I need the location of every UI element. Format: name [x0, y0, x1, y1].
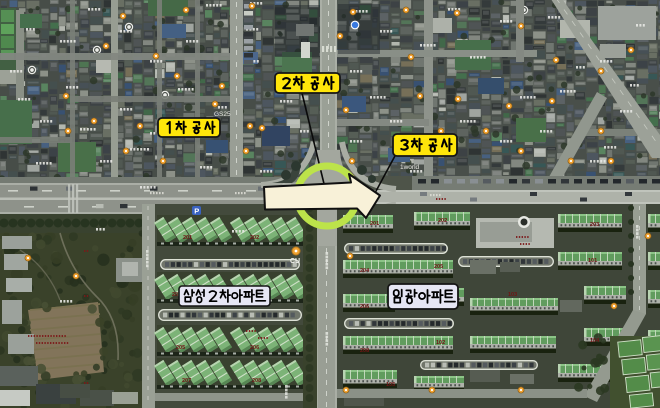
- svg-text:103: 103: [508, 292, 517, 298]
- svg-text:206: 206: [360, 304, 369, 310]
- svg-text:GS25: GS25: [214, 111, 231, 118]
- svg-text:101: 101: [588, 258, 597, 264]
- svg-text:202: 202: [250, 235, 259, 241]
- svg-text:104: 104: [590, 338, 600, 344]
- svg-text:205: 205: [434, 264, 443, 270]
- svg-text:CU: CU: [290, 258, 300, 265]
- svg-text:201: 201: [370, 221, 379, 227]
- svg-text:P: P: [194, 207, 199, 216]
- svg-text:208: 208: [252, 378, 261, 384]
- svg-text:204: 204: [360, 268, 370, 274]
- svg-text:207: 207: [182, 378, 191, 384]
- svg-text:201: 201: [183, 235, 192, 241]
- svg-text:205: 205: [176, 345, 185, 351]
- svg-text:105: 105: [386, 382, 395, 388]
- svg-text:206: 206: [250, 345, 259, 351]
- svg-text:208: 208: [360, 348, 369, 354]
- svg-text:1world: 1world: [400, 164, 420, 171]
- svg-text:202: 202: [438, 218, 447, 224]
- svg-text:102: 102: [436, 340, 445, 346]
- svg-text:203: 203: [590, 222, 599, 228]
